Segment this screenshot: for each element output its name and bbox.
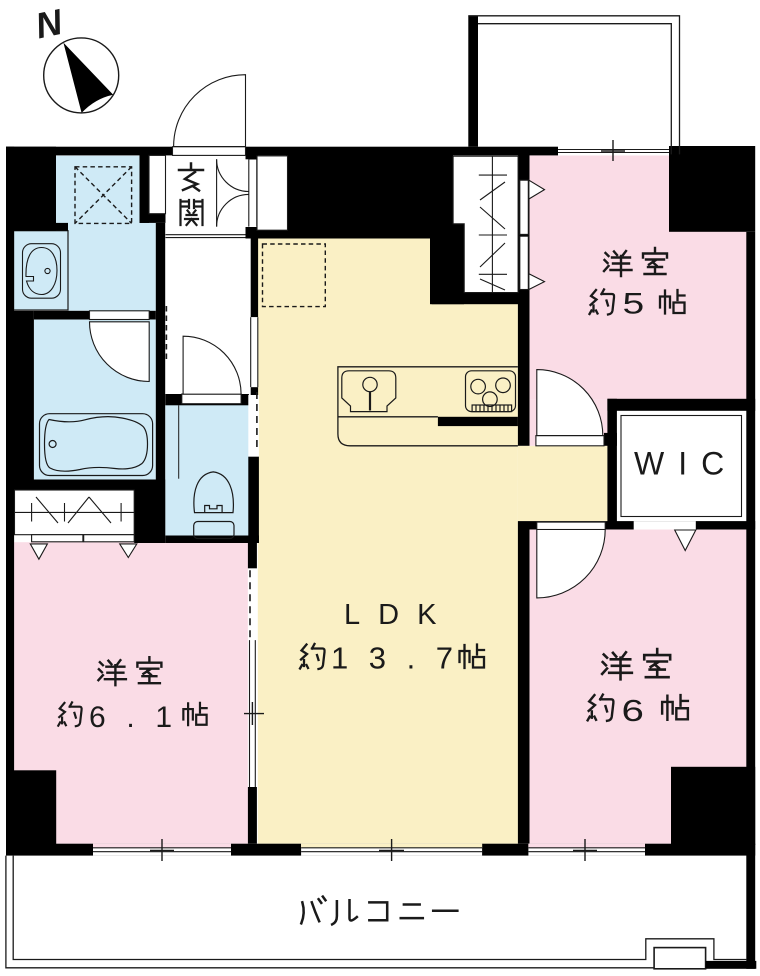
svg-text:6: 6: [622, 693, 644, 728]
svg-text:6.1: 6.1: [89, 701, 172, 734]
svg-text:WIC: WIC: [634, 446, 738, 482]
svg-text:LDK: LDK: [344, 599, 454, 631]
svg-text:5: 5: [623, 288, 645, 321]
